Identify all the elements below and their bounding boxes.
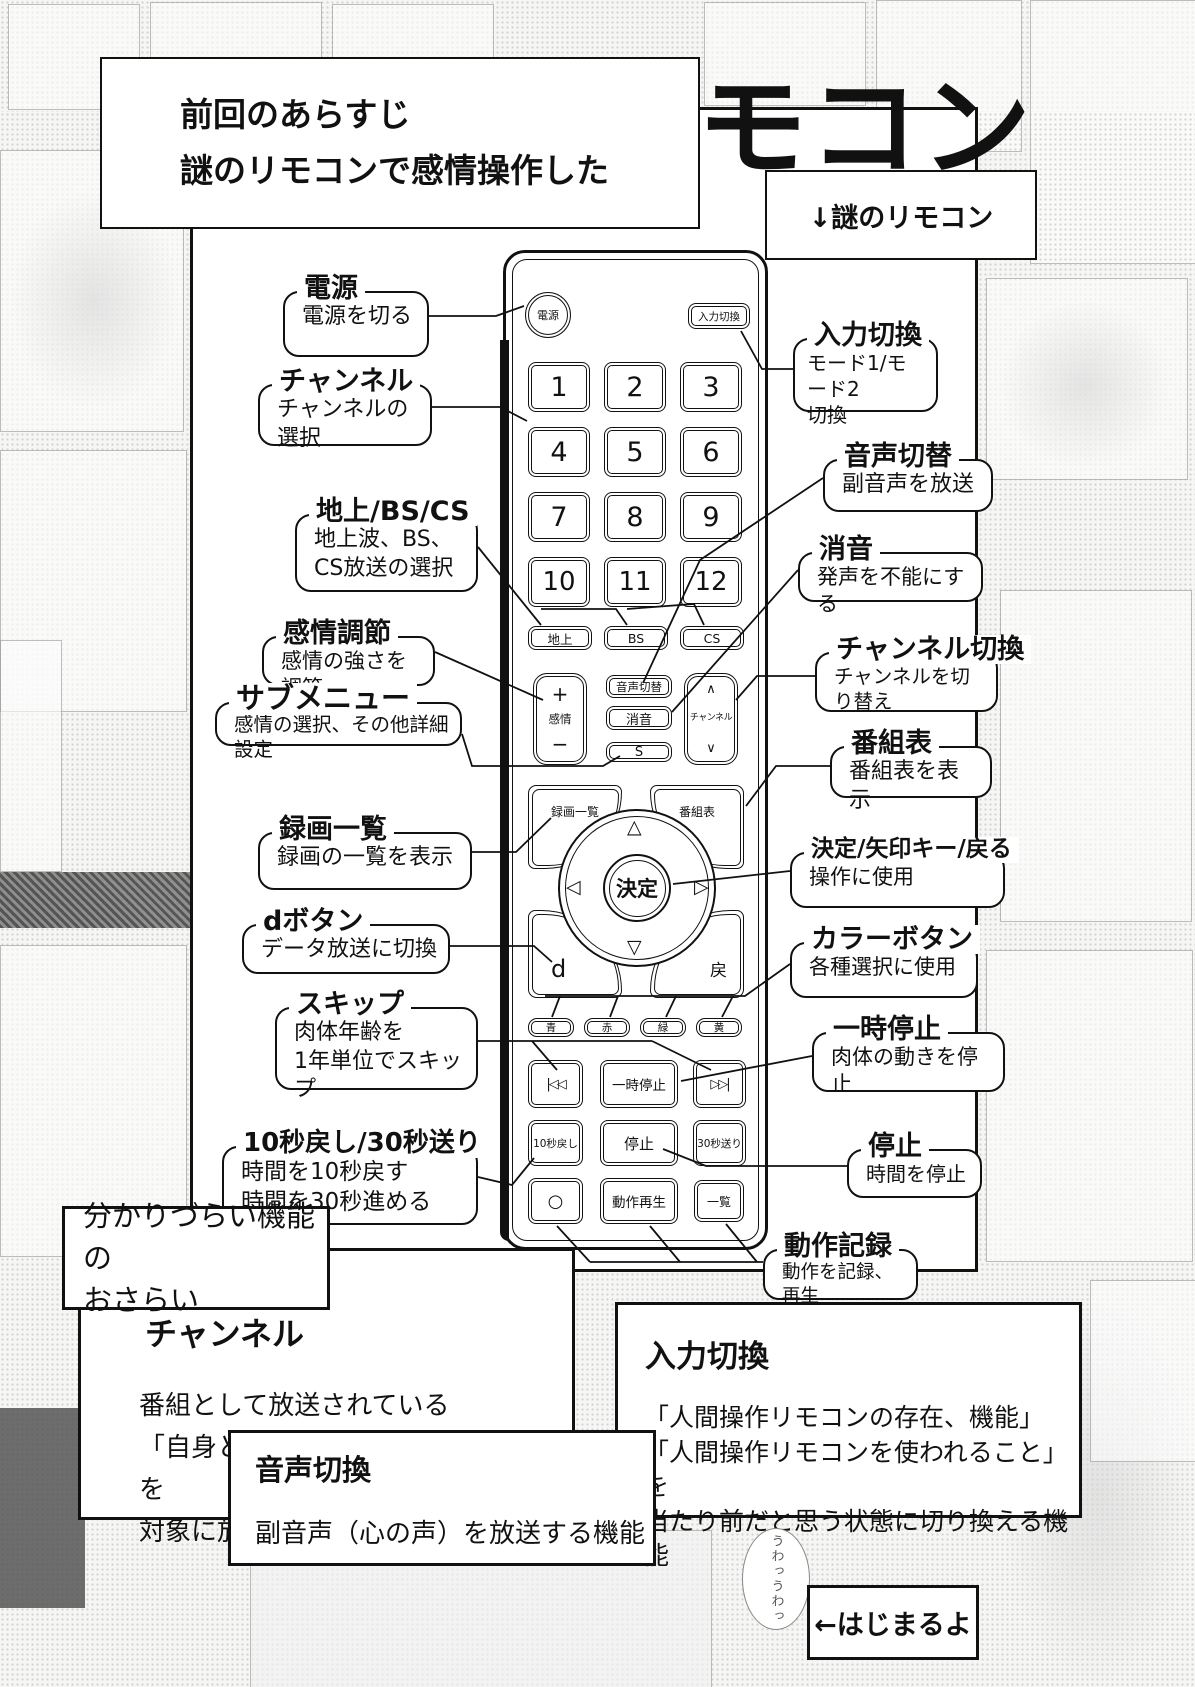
power-button-label: 電源 [537, 307, 559, 323]
start-label: ←はじまるよ [814, 1603, 972, 1642]
callout-title: 入力切換 [807, 321, 929, 351]
number-button-10[interactable]: 10 [528, 557, 590, 607]
start-box: ←はじまるよ [807, 1585, 979, 1660]
callout-d-button: dボタン データ放送に切換 [242, 924, 450, 974]
number-button-11[interactable]: 11 [604, 557, 666, 607]
channel-down: ∨ [706, 741, 716, 756]
number-button-1[interactable]: 1 [528, 362, 590, 412]
callout-desc: 副音声を放送 [842, 471, 981, 500]
number-button-7[interactable]: 7 [528, 492, 590, 542]
audio-summary-body: 副音声（心の声）を放送する機能 [255, 1513, 645, 1550]
callout-desc: チャンネルの選択 [277, 396, 420, 453]
callout-desc: 1年単位でスキップ [294, 1048, 466, 1105]
callout-desc: 地上波、BS、 [314, 526, 466, 555]
manga-page: リモコン 電源 入力切換 1 2 3 4 5 6 7 8 9 10 11 12 … [0, 0, 1195, 1687]
callout-desc: CS放送の選択 [314, 555, 466, 584]
callout-pause: 一時停止 肉体の動きを停止 [812, 1032, 1005, 1092]
enter-button[interactable]: 決定 [603, 854, 671, 922]
body-line: 番組として放送されている [139, 1385, 572, 1427]
emotion-rocker[interactable]: + 感情 − [533, 673, 587, 765]
callout-title: 10秒戻し/30秒送り [236, 1129, 488, 1158]
callout-title: 動作記録 [777, 1232, 899, 1262]
callout-bands: 地上/BS/CS 地上波、BS、CS放送の選択 [295, 514, 478, 592]
body-line: 「人間操作リモコンの存在、機能」 [644, 1401, 1079, 1436]
audio-switch-summary-box: 音声切換 副音声（心の声）を放送する機能 [228, 1430, 656, 1566]
mystery-remote-label: ↓謎のリモコン [765, 170, 1037, 260]
stop-button[interactable]: 停止 [600, 1120, 678, 1166]
mystery-remote-label-text: ↓謎のリモコン [809, 196, 994, 235]
callout-mute: 消音 発声を不能にする [798, 552, 983, 602]
terrestrial-button[interactable]: 地上 [528, 626, 592, 650]
callout-title: スキップ [289, 990, 411, 1020]
callout-desc: 時間を停止 [866, 1161, 970, 1187]
color-button-yellow[interactable]: 黄 [696, 1018, 742, 1037]
cs-button[interactable]: CS [680, 626, 744, 650]
power-button[interactable]: 電源 [525, 292, 571, 338]
tricky-functions-box: 分かりづらい機能の おさらい [62, 1206, 330, 1310]
color-button-blue[interactable]: 青 [528, 1018, 574, 1037]
input-summary-body: 「人間操作リモコンの存在、機能」 「人間操作リモコンを使われること」を 当たり前… [644, 1401, 1079, 1574]
callout-desc: 各種選択に使用 [809, 954, 966, 981]
callout-desc: 肉体年齢を [294, 1019, 466, 1048]
background-art [0, 1408, 85, 1608]
channel-label: チャンネル [690, 714, 732, 723]
pad-down-arrow[interactable]: ▽ [627, 936, 642, 958]
speech-bubble-text: うわっうわっ [767, 1534, 786, 1624]
skip-forward-button[interactable]: ▷▷| [693, 1060, 746, 1108]
emotion-minus: − [552, 732, 569, 756]
callout-desc: モード1/モード2 [807, 350, 926, 402]
body-line: 当たり前だと思う状態に切り換える機能 [644, 1505, 1079, 1574]
background-art [1090, 1280, 1195, 1462]
mute-button[interactable]: 消音 [606, 706, 672, 730]
background-art [1000, 300, 1170, 470]
callout-title: dボタン [256, 907, 370, 937]
callout-desc: 切換 [807, 402, 926, 428]
pause-button[interactable]: 一時停止 [600, 1060, 678, 1108]
callout-submenu: サブメニュー 感情の選択、その他詳細設定 [215, 702, 462, 746]
audio-switch-button[interactable]: 音声切替 [606, 675, 672, 698]
input-switch-label: 入力切換 [698, 309, 740, 324]
skip-back-button[interactable]: |◁◁ [528, 1060, 583, 1108]
callout-channel: チャンネル チャンネルの選択 [258, 384, 432, 446]
body-line: 「人間操作リモコンを使われること」を [644, 1436, 1079, 1505]
recap-line: 謎のリモコンで感情操作した [180, 143, 698, 199]
pad-up-arrow[interactable]: △ [627, 816, 642, 838]
callout-title: サブメニュー [229, 683, 417, 715]
background-art [0, 872, 190, 928]
remote-side-shade [500, 340, 509, 1241]
action-replay-button[interactable]: 動作再生 [600, 1178, 678, 1224]
callout-desc: 操作に使用 [809, 864, 993, 891]
callout-desc: 電源を切る [302, 303, 417, 332]
callout-emotion-adjust: 感情調節 感情の強さを調節 [262, 636, 435, 686]
number-button-12[interactable]: 12 [680, 557, 742, 607]
callout-title: チャンネル [272, 367, 420, 397]
callout-desc: データ放送に切換 [261, 936, 438, 965]
background-art [0, 640, 62, 872]
callout-enter-arrows: 決定/矢印キー/戻る 操作に使用 [790, 852, 1005, 908]
pad-right-arrow[interactable]: ▷ [694, 876, 709, 898]
callout-rec-list: 録画一覧 録画の一覧を表示 [258, 832, 472, 890]
callout-desc: 時間を10秒戻す [241, 1158, 466, 1188]
callout-desc: チャンネルを切り替え [834, 664, 986, 715]
input-switch-button[interactable]: 入力切換 [688, 303, 750, 329]
number-button-5[interactable]: 5 [604, 427, 666, 477]
callout-title: 地上/BS/CS [309, 497, 477, 527]
bs-button[interactable]: BS [604, 626, 668, 650]
number-button-2[interactable]: 2 [604, 362, 666, 412]
callout-channel-switch: チャンネル切換 チャンネルを切り替え [815, 652, 998, 712]
forward-30s-button[interactable]: 30秒送り [693, 1120, 746, 1166]
callout-title: 消音 [812, 535, 880, 565]
back-10s-button[interactable]: 10秒戻し [528, 1120, 583, 1166]
recap-box: 前回のあらすじ 謎のリモコンで感情操作した [100, 57, 700, 229]
callout-input-switch: 入力切換 モード1/モード2切換 [793, 338, 938, 412]
callout-desc: 感情の選択、その他詳細設定 [234, 712, 450, 763]
recap-line: 前回のあらすじ [180, 87, 698, 143]
number-button-9[interactable]: 9 [680, 492, 742, 542]
number-button-8[interactable]: 8 [604, 492, 666, 542]
input-summary-title: 入力切換 [645, 1331, 769, 1376]
callout-title: 番組表 [844, 729, 939, 759]
channel-rocker[interactable]: ∧ チャンネル ∨ [684, 673, 738, 765]
s-button[interactable]: S [606, 742, 672, 762]
number-button-4[interactable]: 4 [528, 427, 590, 477]
callout-skip: スキップ 肉体年齢を1年単位でスキップ [275, 1007, 478, 1090]
emotion-plus: + [552, 682, 569, 706]
callout-color-buttons: カラーボタン 各種選択に使用 [790, 942, 978, 998]
callout-power: 電源 電源を切る [283, 291, 429, 357]
background-art [986, 950, 1193, 1262]
callout-title: 音声切替 [837, 442, 959, 472]
color-button-red[interactable]: 赤 [584, 1018, 630, 1037]
callout-title: 感情調節 [276, 619, 398, 649]
tricky-line: 分かりづらい機能の [83, 1195, 327, 1279]
callout-title: 録画一覧 [272, 815, 394, 845]
callout-desc: 肉体の動きを停止 [831, 1044, 993, 1099]
callout-desc: 発声を不能にする [817, 564, 971, 619]
callout-action-record: 動作記録 動作を記録、再生 [763, 1249, 918, 1300]
list-button[interactable]: 一覧 [694, 1180, 744, 1222]
number-button-6[interactable]: 6 [680, 427, 742, 477]
callout-title: 決定/矢印キー/戻る [804, 837, 1019, 862]
callout-guide: 番組表 番組表を表示 [830, 746, 992, 798]
callout-stop: 停止 時間を停止 [847, 1149, 982, 1198]
pad-left-arrow[interactable]: ◁ [566, 876, 581, 898]
callout-title: 停止 [861, 1132, 929, 1162]
tricky-line: おさらい [83, 1279, 327, 1321]
callout-desc: 番組表を表示 [849, 758, 980, 815]
number-button-3[interactable]: 3 [680, 362, 742, 412]
record-circle-button[interactable]: ○ [528, 1178, 583, 1224]
audio-summary-title: 音声切換 [255, 1447, 371, 1489]
callout-desc: 録画の一覧を表示 [277, 844, 460, 873]
emotion-label: 感情 [549, 711, 572, 727]
speech-bubble: うわっうわっ [742, 1528, 810, 1630]
callout-title: 一時停止 [826, 1015, 948, 1045]
input-switch-summary-box: 入力切換 「人間操作リモコンの存在、機能」 「人間操作リモコンを使われること」を… [615, 1302, 1082, 1518]
callout-title: チャンネル切換 [829, 635, 1031, 665]
callout-title: 電源 [297, 274, 365, 304]
callout-title: カラーボタン [804, 925, 980, 955]
color-button-green[interactable]: 緑 [640, 1018, 686, 1037]
channel-up: ∧ [706, 682, 716, 697]
callout-audio-switch: 音声切替 副音声を放送 [823, 459, 993, 512]
